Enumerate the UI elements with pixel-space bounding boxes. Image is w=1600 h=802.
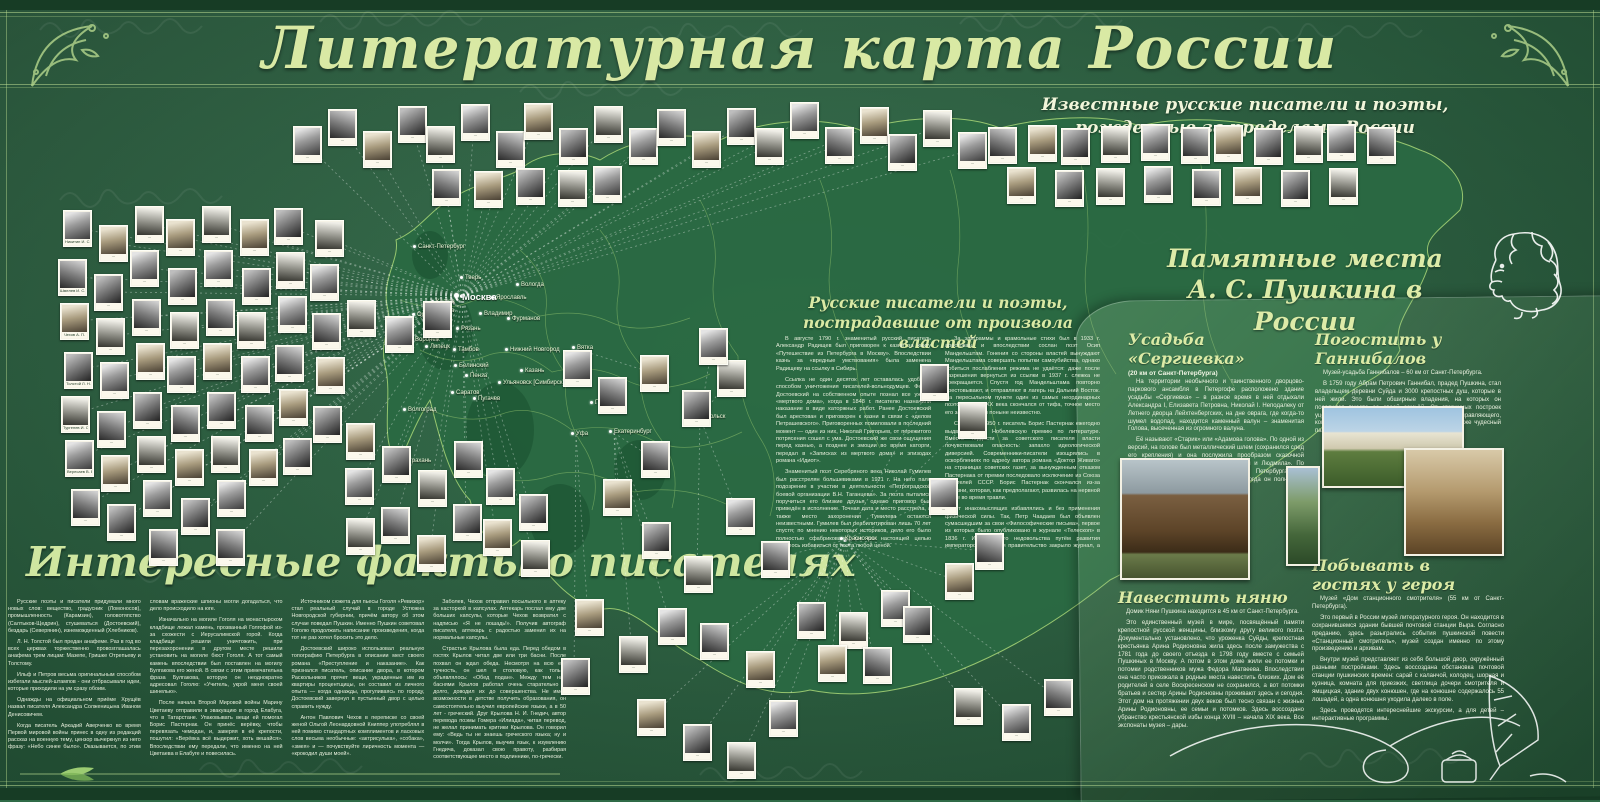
portrait-photo bbox=[219, 482, 244, 509]
portrait-photo bbox=[169, 358, 194, 385]
city-dot bbox=[505, 348, 508, 351]
portrait-photo bbox=[820, 647, 845, 674]
portrait-photo bbox=[485, 521, 510, 548]
writer-portrait: ··· bbox=[1181, 127, 1210, 164]
portrait-name-label: ··· bbox=[862, 136, 887, 142]
place-hero-text: Музей «Дом станционного смотрителя» (55 … bbox=[1312, 596, 1504, 724]
writer-portrait: ··· bbox=[328, 109, 357, 146]
writer-portrait: ··· bbox=[242, 268, 271, 305]
portrait-name-label: ··· bbox=[251, 478, 276, 484]
portrait-photo bbox=[315, 408, 340, 435]
writer-portrait: ··· bbox=[202, 206, 231, 243]
portrait-photo bbox=[1009, 169, 1034, 196]
city-label: Фурманов bbox=[512, 316, 540, 322]
city-dot bbox=[460, 276, 463, 279]
portrait-photo bbox=[560, 172, 585, 199]
portrait-photo bbox=[771, 702, 796, 729]
portrait-photo bbox=[419, 537, 444, 564]
portrait-name-label: ··· bbox=[960, 431, 985, 437]
writer-portrait: ··· bbox=[1281, 170, 1310, 207]
portrait-name-label: ··· bbox=[103, 484, 128, 490]
portrait-name-label: ··· bbox=[177, 478, 202, 484]
writer-portrait: ··· bbox=[143, 480, 172, 517]
portrait-name-label: ··· bbox=[209, 421, 234, 427]
portrait-name-label: ··· bbox=[420, 499, 445, 505]
portrait-photo bbox=[96, 276, 121, 303]
portrait-name-label: ··· bbox=[1194, 198, 1219, 204]
portrait-photo bbox=[205, 345, 230, 372]
portrait-photo bbox=[278, 254, 303, 281]
portrait-photo bbox=[660, 610, 685, 637]
writer-portrait: ··· bbox=[888, 134, 917, 171]
portrait-photo bbox=[63, 398, 88, 425]
portrait-name-label: Тургенев И. С. bbox=[63, 425, 88, 431]
writer-portrait: ··· bbox=[727, 742, 756, 779]
portrait-photo bbox=[684, 392, 709, 419]
portrait-name-label: ··· bbox=[183, 527, 208, 533]
writer-portrait: ··· bbox=[637, 699, 666, 736]
writer-portrait: ··· bbox=[700, 623, 729, 660]
portrait-name-label: ··· bbox=[523, 569, 548, 575]
portrait-name-label: ··· bbox=[169, 385, 194, 391]
portrait-name-label: ··· bbox=[134, 328, 159, 334]
portrait-photo bbox=[172, 314, 197, 341]
portrait-photo bbox=[1329, 126, 1354, 153]
writer-portrait: Толстой Л. Н. bbox=[64, 352, 93, 389]
pushkin-heading-line1: Памятные места bbox=[1140, 243, 1470, 274]
writer-portrait: ··· bbox=[454, 441, 483, 478]
writer-portrait: Чехов А. П. bbox=[60, 303, 89, 340]
portrait-photo bbox=[208, 301, 233, 328]
portrait-name-label: ··· bbox=[925, 139, 950, 145]
portrait-photo bbox=[295, 128, 320, 155]
writer-portrait: Шмелев И. С. bbox=[58, 259, 87, 296]
portrait-name-label: ··· bbox=[285, 467, 310, 473]
portrait-name-label: ··· bbox=[239, 341, 264, 347]
city-dot bbox=[609, 430, 612, 433]
place-nanny-title: Навестить няню bbox=[1118, 588, 1304, 607]
portrait-name-label: ··· bbox=[977, 562, 1002, 568]
portrait-name-label: ··· bbox=[208, 328, 233, 334]
portrait-photo bbox=[643, 443, 668, 470]
writer-portrait: ··· bbox=[149, 529, 178, 566]
portrait-name-label: ··· bbox=[922, 393, 947, 399]
writer-portrait: ··· bbox=[1007, 167, 1036, 204]
portrait-photo bbox=[960, 134, 985, 161]
writer-portrait: ··· bbox=[310, 264, 339, 301]
writer-portrait: ··· bbox=[474, 171, 503, 208]
portrait-photo bbox=[827, 129, 852, 156]
writer-portrait: ··· bbox=[683, 724, 712, 761]
portrait-photo bbox=[170, 270, 195, 297]
portrait-photo bbox=[425, 303, 450, 330]
portrait-photo bbox=[644, 524, 669, 551]
portrait-photo bbox=[890, 136, 915, 163]
portrait-name-label: ··· bbox=[600, 406, 625, 412]
writer-portrait: ··· bbox=[839, 612, 868, 649]
portrait-photo bbox=[65, 212, 90, 239]
portrait-name-label: ··· bbox=[890, 163, 915, 169]
portrait-name-label: ··· bbox=[729, 771, 754, 777]
portrait-name-label: ··· bbox=[596, 135, 621, 141]
portrait-name-label: ··· bbox=[383, 536, 408, 542]
writer-portrait: ··· bbox=[346, 423, 375, 460]
portrait-name-label: ··· bbox=[498, 160, 523, 166]
portrait-name-label: ··· bbox=[694, 160, 719, 166]
portrait-name-label: ··· bbox=[330, 138, 355, 144]
writer-portrait: ··· bbox=[923, 110, 952, 147]
writer-portrait: ··· bbox=[130, 250, 159, 287]
portrait-name-label: ··· bbox=[349, 329, 374, 335]
portrait-photo bbox=[757, 130, 782, 157]
writer-portrait: ··· bbox=[657, 109, 686, 146]
portrait-name-label: ··· bbox=[1369, 156, 1394, 162]
writer-portrait: ··· bbox=[975, 533, 1004, 570]
portrait-name-label: ··· bbox=[659, 138, 684, 144]
portrait-name-label: ··· bbox=[631, 157, 656, 163]
portrait-name-label: ··· bbox=[277, 374, 302, 380]
city-label: Рязань bbox=[461, 326, 481, 332]
portrait-photo bbox=[728, 500, 753, 527]
portrait-name-label: ··· bbox=[314, 342, 339, 348]
portrait-name-label: ··· bbox=[560, 199, 585, 205]
city-dot bbox=[507, 317, 510, 320]
writer-portrait: ··· bbox=[293, 126, 322, 163]
portrait-name-label: ··· bbox=[931, 507, 956, 513]
portrait-name-label: ··· bbox=[865, 676, 890, 682]
writer-portrait: ··· bbox=[1028, 125, 1057, 162]
writer-portrait: ··· bbox=[1044, 679, 1073, 716]
writer-portrait: ··· bbox=[167, 356, 196, 393]
writer-portrait: ··· bbox=[279, 389, 308, 426]
writer-portrait: ··· bbox=[920, 364, 949, 401]
writer-portrait: ··· bbox=[101, 455, 130, 492]
portrait-photo bbox=[1283, 172, 1308, 199]
portrait-name-label: ··· bbox=[827, 156, 852, 162]
writer-portrait: ··· bbox=[313, 406, 342, 443]
writer-portrait: ··· bbox=[1002, 704, 1031, 741]
portrait-photo bbox=[686, 558, 711, 585]
writer-portrait: ··· bbox=[629, 128, 658, 165]
portrait-photo bbox=[135, 394, 160, 421]
portrait-photo bbox=[317, 222, 342, 249]
portrait-name-label: ··· bbox=[139, 465, 164, 471]
portrait-photo bbox=[947, 565, 972, 592]
writer-portrait: ··· bbox=[204, 250, 233, 287]
writer-portrait: ··· bbox=[619, 636, 648, 673]
writer-portrait: ··· bbox=[99, 225, 128, 262]
writer-portrait: ··· bbox=[516, 168, 545, 205]
writer-portrait: ··· bbox=[426, 126, 455, 163]
portrait-photo bbox=[204, 208, 229, 235]
writer-portrait: ··· bbox=[132, 299, 161, 336]
city-label: Вологда bbox=[521, 282, 544, 288]
writer-portrait: ··· bbox=[496, 131, 525, 168]
writer-portrait: ··· bbox=[1329, 168, 1358, 205]
city-label: Екатеринбург bbox=[614, 429, 652, 435]
portrait-photo bbox=[763, 543, 788, 570]
writer-portrait: ··· bbox=[276, 252, 305, 289]
portrait-photo bbox=[799, 604, 824, 631]
literary-map-poster: Литературная карта России Известные русс… bbox=[0, 0, 1600, 800]
writer-portrait: ··· bbox=[347, 300, 376, 337]
portrait-photo bbox=[455, 506, 480, 533]
leaf-divider bbox=[20, 766, 560, 782]
portrait-photo bbox=[577, 601, 602, 628]
writer-portrait: ··· bbox=[166, 219, 195, 256]
portrait-photo bbox=[702, 625, 727, 652]
writer-portrait: ··· bbox=[382, 446, 411, 483]
portrait-photo bbox=[922, 366, 947, 393]
writer-portrait: ··· bbox=[903, 606, 932, 643]
writer-portrait: ··· bbox=[175, 449, 204, 486]
portrait-name-label: ··· bbox=[728, 527, 753, 533]
writer-portrait: ··· bbox=[418, 470, 447, 507]
portrait-name-label: ··· bbox=[1296, 155, 1321, 161]
writer-portrait: ··· bbox=[345, 468, 374, 505]
portrait-name-label: ··· bbox=[347, 497, 372, 503]
portrait-name-label: ··· bbox=[644, 551, 669, 557]
writer-portrait: Вересаев В. В. bbox=[65, 440, 94, 477]
portrait-name-label: ··· bbox=[702, 652, 727, 658]
city-dot bbox=[454, 293, 459, 298]
portrait-name-label: ··· bbox=[792, 131, 817, 137]
portrait-photo bbox=[565, 352, 590, 379]
writer-portrait: ··· bbox=[945, 563, 974, 600]
portrait-name-label: ··· bbox=[170, 297, 195, 303]
portrait-photo bbox=[98, 320, 123, 347]
writer-portrait: ··· bbox=[641, 441, 670, 478]
writer-portrait: ··· bbox=[315, 220, 344, 257]
city-label: Санкт-Петербург bbox=[418, 244, 465, 250]
portrait-photo bbox=[218, 531, 243, 558]
writer-portrait: ··· bbox=[249, 449, 278, 486]
portrait-photo bbox=[1004, 706, 1029, 733]
poster-title: Литературная карта России bbox=[0, 14, 1600, 82]
portrait-photo bbox=[244, 270, 269, 297]
portrait-photo bbox=[642, 357, 667, 384]
writer-portrait: ··· bbox=[136, 343, 165, 380]
city-label: Саратов bbox=[456, 390, 479, 396]
portrait-photo bbox=[173, 407, 198, 434]
portrait-photo bbox=[242, 221, 267, 248]
portrait-name-label: ··· bbox=[639, 728, 664, 734]
portrait-name-label: ··· bbox=[434, 198, 459, 204]
writer-portrait: ··· bbox=[135, 206, 164, 243]
city-dot bbox=[479, 312, 482, 315]
portrait-photo bbox=[1369, 129, 1394, 156]
city-label: Ярославль bbox=[496, 295, 527, 301]
portrait-photo bbox=[523, 542, 548, 569]
writer-portrait: ··· bbox=[658, 608, 687, 645]
portrait-name-label: ··· bbox=[1103, 155, 1128, 161]
portrait-name-label: Чехов А. П. bbox=[62, 332, 87, 338]
writer-portrait: ··· bbox=[94, 274, 123, 311]
portrait-photo bbox=[251, 451, 276, 478]
portrait-photo bbox=[600, 379, 625, 406]
writer-portrait: ··· bbox=[593, 166, 622, 203]
portrait-name-label: ··· bbox=[73, 518, 98, 524]
city-label: Ульяновск [Симбирск] bbox=[503, 380, 564, 386]
portrait-photo bbox=[701, 330, 726, 357]
city-label: Пугачев bbox=[478, 396, 500, 402]
portrait-name-label: ··· bbox=[428, 155, 453, 161]
writer-portrait: ··· bbox=[682, 390, 711, 427]
portrait-name-label: ··· bbox=[205, 372, 230, 378]
portrait-photo bbox=[977, 535, 1002, 562]
place-hero-title: Побывать в гостях у героя bbox=[1312, 556, 1504, 594]
writer-portrait: ··· bbox=[346, 518, 375, 555]
city-dot bbox=[840, 537, 843, 540]
portrait-photo bbox=[476, 173, 501, 200]
portrait-photo bbox=[213, 438, 238, 465]
portrait-photo bbox=[365, 133, 390, 160]
portrait-photo bbox=[605, 481, 630, 508]
portrait-name-label: ··· bbox=[563, 687, 588, 693]
portrait-photo bbox=[139, 438, 164, 465]
portrait-photo bbox=[1063, 130, 1088, 157]
writer-portrait: ··· bbox=[168, 268, 197, 305]
portrait-name-label: ··· bbox=[1009, 196, 1034, 202]
portrait-photo bbox=[729, 744, 754, 771]
portrait-name-label: ··· bbox=[98, 347, 123, 353]
writer-portrait: ··· bbox=[100, 362, 129, 399]
portrait-name-label: ··· bbox=[485, 548, 510, 554]
title-underline bbox=[0, 87, 1600, 88]
portrait-photo bbox=[318, 359, 343, 386]
writer-portrait: ··· bbox=[558, 170, 587, 207]
portrait-name-label: ··· bbox=[476, 200, 501, 206]
portrait-name-label: ··· bbox=[748, 680, 773, 686]
portrait-name-label: ··· bbox=[684, 419, 709, 425]
writer-portrait: ··· bbox=[278, 296, 307, 333]
writer-portrait: ··· bbox=[860, 107, 889, 144]
portrait-name-label: ··· bbox=[456, 470, 481, 476]
museum-photo-izba bbox=[1120, 458, 1250, 580]
writer-portrait: ··· bbox=[245, 405, 274, 442]
writer-portrait: ··· bbox=[1096, 168, 1125, 205]
city-dot bbox=[590, 401, 593, 404]
portrait-photo bbox=[145, 482, 170, 509]
portrait-photo bbox=[1057, 172, 1082, 199]
writer-portrait: ··· bbox=[283, 438, 312, 475]
writer-portrait: ··· bbox=[97, 411, 126, 448]
portrait-photo bbox=[109, 506, 134, 533]
writer-portrait: ··· bbox=[385, 316, 414, 353]
writer-portrait: ··· bbox=[461, 104, 490, 141]
city-dot bbox=[498, 381, 501, 384]
writer-portrait: Никитин И. С. bbox=[63, 210, 92, 247]
portrait-photo bbox=[348, 520, 373, 547]
portrait-photo bbox=[151, 531, 176, 558]
portrait-name-label: ··· bbox=[145, 509, 170, 515]
portrait-photo bbox=[434, 171, 459, 198]
writer-portrait: ··· bbox=[241, 356, 270, 393]
writer-portrait: ··· bbox=[316, 357, 345, 394]
portrait-photo bbox=[498, 133, 523, 160]
portrait-name-label: ··· bbox=[281, 418, 306, 424]
portrait-name-label: ··· bbox=[595, 195, 620, 201]
portrait-name-label: ··· bbox=[138, 372, 163, 378]
portrait-name-label: ··· bbox=[577, 628, 602, 634]
writer-portrait: ··· bbox=[203, 343, 232, 380]
writer-portrait: ··· bbox=[1294, 126, 1323, 163]
museum-photo-interior bbox=[1404, 448, 1504, 556]
pushkin-heading-line2: А. С. Пушкина в России bbox=[1140, 274, 1470, 337]
portrait-name-label: ··· bbox=[561, 157, 586, 163]
writer-portrait: ··· bbox=[423, 301, 452, 338]
writer-portrait: ··· bbox=[561, 658, 590, 695]
portrait-photo bbox=[1331, 170, 1356, 197]
portrait-name-label: ··· bbox=[312, 293, 337, 299]
portrait-name-label: ··· bbox=[621, 665, 646, 671]
city-dot bbox=[571, 432, 574, 435]
portrait-name-label: ··· bbox=[1030, 154, 1055, 160]
city-dot bbox=[456, 327, 459, 330]
city-dot bbox=[403, 408, 406, 411]
portrait-name-label: ··· bbox=[1216, 154, 1241, 160]
city-label: Волгоград bbox=[408, 407, 436, 413]
city-dot bbox=[473, 397, 476, 400]
portrait-name-label: ··· bbox=[799, 631, 824, 637]
writer-portrait: ··· bbox=[206, 299, 235, 336]
writer-portrait: ··· bbox=[863, 647, 892, 684]
portrait-photo bbox=[521, 496, 546, 523]
frame-line bbox=[0, 12, 1600, 13]
writer-portrait: ··· bbox=[398, 106, 427, 143]
portrait-photo bbox=[383, 509, 408, 536]
portrait-photo bbox=[905, 608, 930, 635]
writer-portrait: ··· bbox=[929, 478, 958, 515]
portrait-photo bbox=[132, 252, 157, 279]
city-label: Липецк bbox=[430, 344, 450, 350]
place-hero: Побывать в гостях у героя Музей «Дом ста… bbox=[1312, 556, 1504, 727]
city-label: Казань bbox=[525, 368, 544, 374]
writer-portrait: ··· bbox=[240, 219, 269, 256]
portrait-photo bbox=[102, 364, 127, 391]
portrait-photo bbox=[621, 638, 646, 665]
portrait-name-label: ··· bbox=[518, 197, 543, 203]
portrait-photo bbox=[960, 404, 985, 431]
portrait-photo bbox=[428, 128, 453, 155]
portrait-photo bbox=[456, 443, 481, 470]
portrait-photo bbox=[66, 354, 91, 381]
portrait-photo bbox=[239, 314, 264, 341]
portrait-photo bbox=[183, 500, 208, 527]
writer-portrait: ··· bbox=[453, 504, 482, 541]
writer-portrait: ··· bbox=[486, 468, 515, 505]
writer-portrait: ··· bbox=[958, 132, 987, 169]
portrait-photo bbox=[719, 362, 744, 389]
portrait-name-label: ··· bbox=[213, 465, 238, 471]
portrait-name-label: ··· bbox=[317, 249, 342, 255]
portrait-photo bbox=[596, 108, 621, 135]
portrait-photo bbox=[67, 442, 92, 469]
portrait-name-label: ··· bbox=[455, 533, 480, 539]
portrait-photo bbox=[73, 491, 98, 518]
portrait-name-label: ··· bbox=[173, 434, 198, 440]
writer-portrait: ··· bbox=[432, 169, 461, 206]
portrait-name-label: ··· bbox=[719, 389, 744, 395]
writer-portrait: ··· bbox=[237, 312, 266, 349]
portrait-name-label: ··· bbox=[701, 357, 726, 363]
portrait-photo bbox=[1098, 170, 1123, 197]
portrait-photo bbox=[384, 448, 409, 475]
portrait-photo bbox=[280, 298, 305, 325]
writer-portrait: ··· bbox=[717, 360, 746, 397]
portrait-photo bbox=[1143, 126, 1168, 153]
portrait-name-label: ··· bbox=[135, 421, 160, 427]
